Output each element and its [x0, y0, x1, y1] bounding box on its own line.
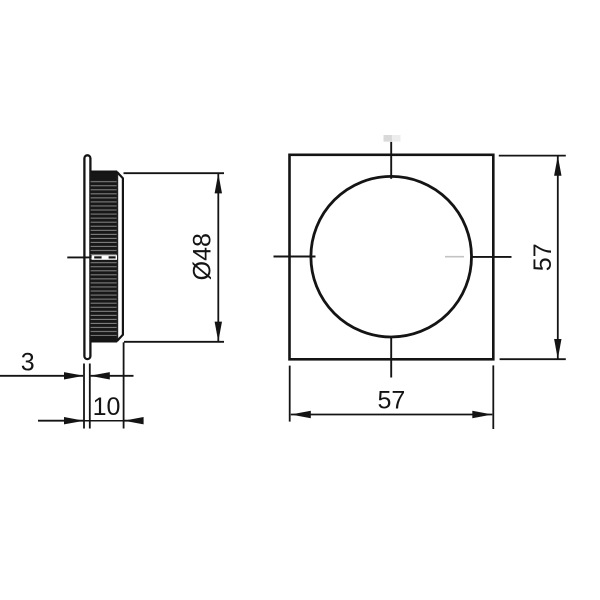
- svg-text:57: 57: [529, 243, 557, 271]
- svg-text:Ø48: Ø48: [189, 233, 217, 280]
- svg-text:3: 3: [21, 348, 35, 376]
- svg-text:57: 57: [377, 386, 405, 414]
- svg-text:10: 10: [93, 393, 121, 421]
